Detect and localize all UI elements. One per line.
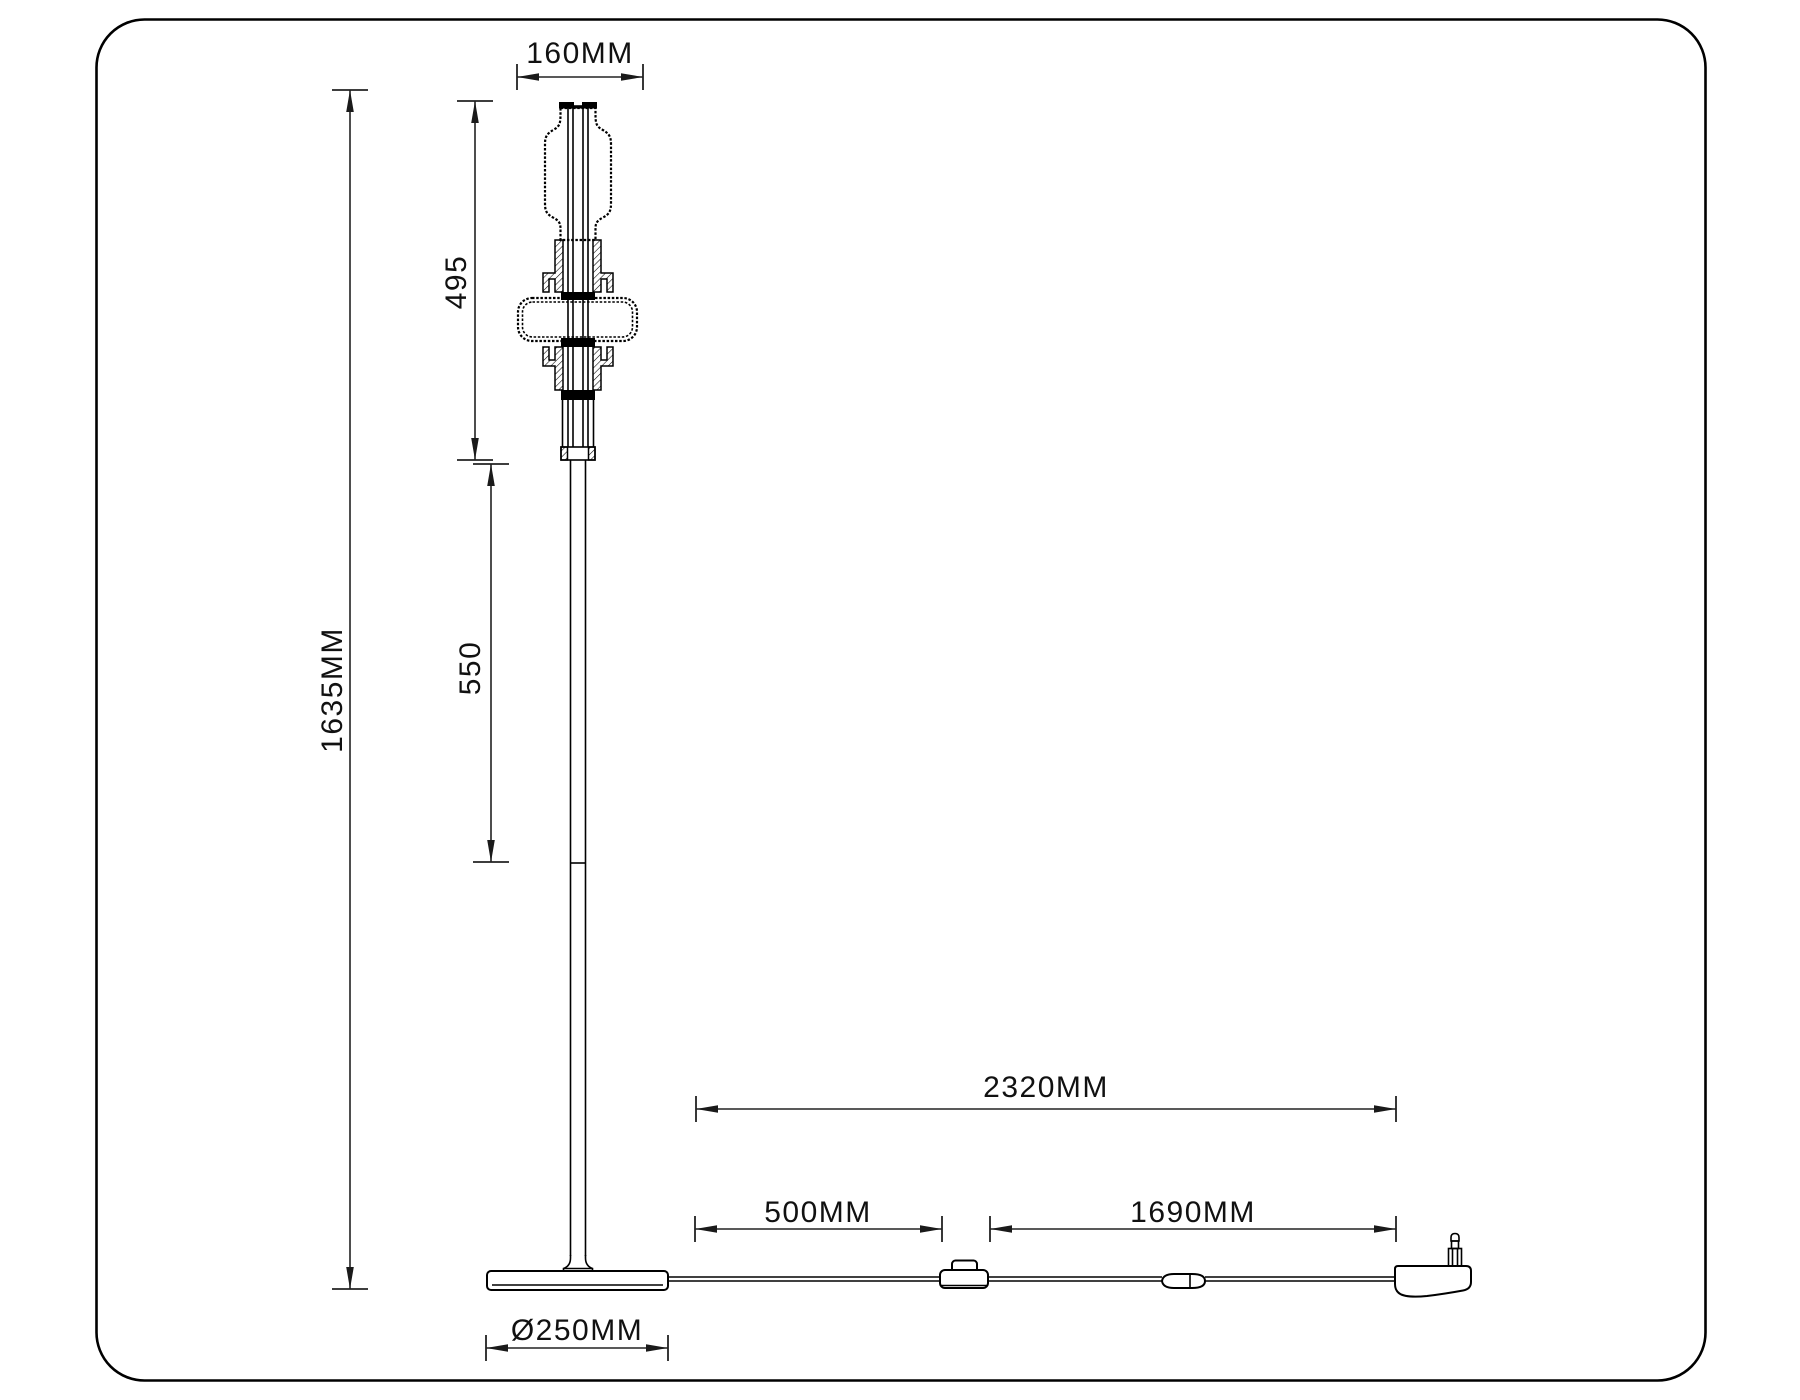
pole-collar: [561, 447, 595, 460]
dim-upper-pole-label: 550: [454, 641, 487, 696]
middle-glass-shade: [518, 298, 637, 341]
top-glass-shade: [545, 108, 611, 240]
dim-head-height: 495: [440, 101, 493, 460]
dim-total-height-label: 1635MM: [316, 627, 349, 753]
dimension-annotations: 160MM 495 550 1635MM 2320MM: [316, 37, 1396, 1361]
dim-head-height-label: 495: [440, 255, 473, 310]
power-cord: [668, 1277, 1395, 1281]
power-plug: [1395, 1234, 1471, 1297]
dim-head-width-label: 160MM: [526, 37, 634, 70]
lamp-pole: [571, 460, 586, 1256]
dim-switch-to-plug: 1690MM: [990, 1196, 1396, 1242]
pole-foot: [564, 1255, 593, 1271]
lower-clamp-ring-top: [561, 338, 595, 347]
floor-lamp: [487, 102, 1471, 1297]
dim-cord-total: 2320MM: [696, 1071, 1396, 1122]
lower-socket-section: [543, 338, 613, 400]
dim-base-diameter-label: Ø250MM: [511, 1314, 643, 1347]
dim-switch-to-plug-label: 1690MM: [1130, 1196, 1256, 1229]
lamp-base: [487, 1271, 668, 1290]
dim-cord-total-label: 2320MM: [983, 1071, 1109, 1104]
upper-socket-section: [543, 240, 613, 300]
dim-base-diameter: Ø250MM: [486, 1314, 668, 1361]
plug-prong: [1449, 1234, 1462, 1267]
plug-body: [1395, 1266, 1471, 1297]
cord-connector: [1162, 1274, 1205, 1288]
inline-switch: [940, 1261, 988, 1289]
dim-upper-pole: 550: [454, 464, 509, 862]
dim-base-to-switch: 500MM: [695, 1196, 942, 1242]
dim-base-to-switch-label: 500MM: [764, 1196, 872, 1229]
dim-head-width: 160MM: [517, 37, 643, 90]
drawing-canvas: 160MM 495 550 1635MM 2320MM: [0, 0, 1800, 1400]
lower-clamp-ring-bottom: [561, 390, 595, 400]
head-lower-tube: [563, 400, 594, 447]
floor-lamp-dimension-drawing: 160MM 495 550 1635MM 2320MM: [0, 0, 1800, 1400]
dim-total-height: 1635MM: [316, 90, 368, 1289]
